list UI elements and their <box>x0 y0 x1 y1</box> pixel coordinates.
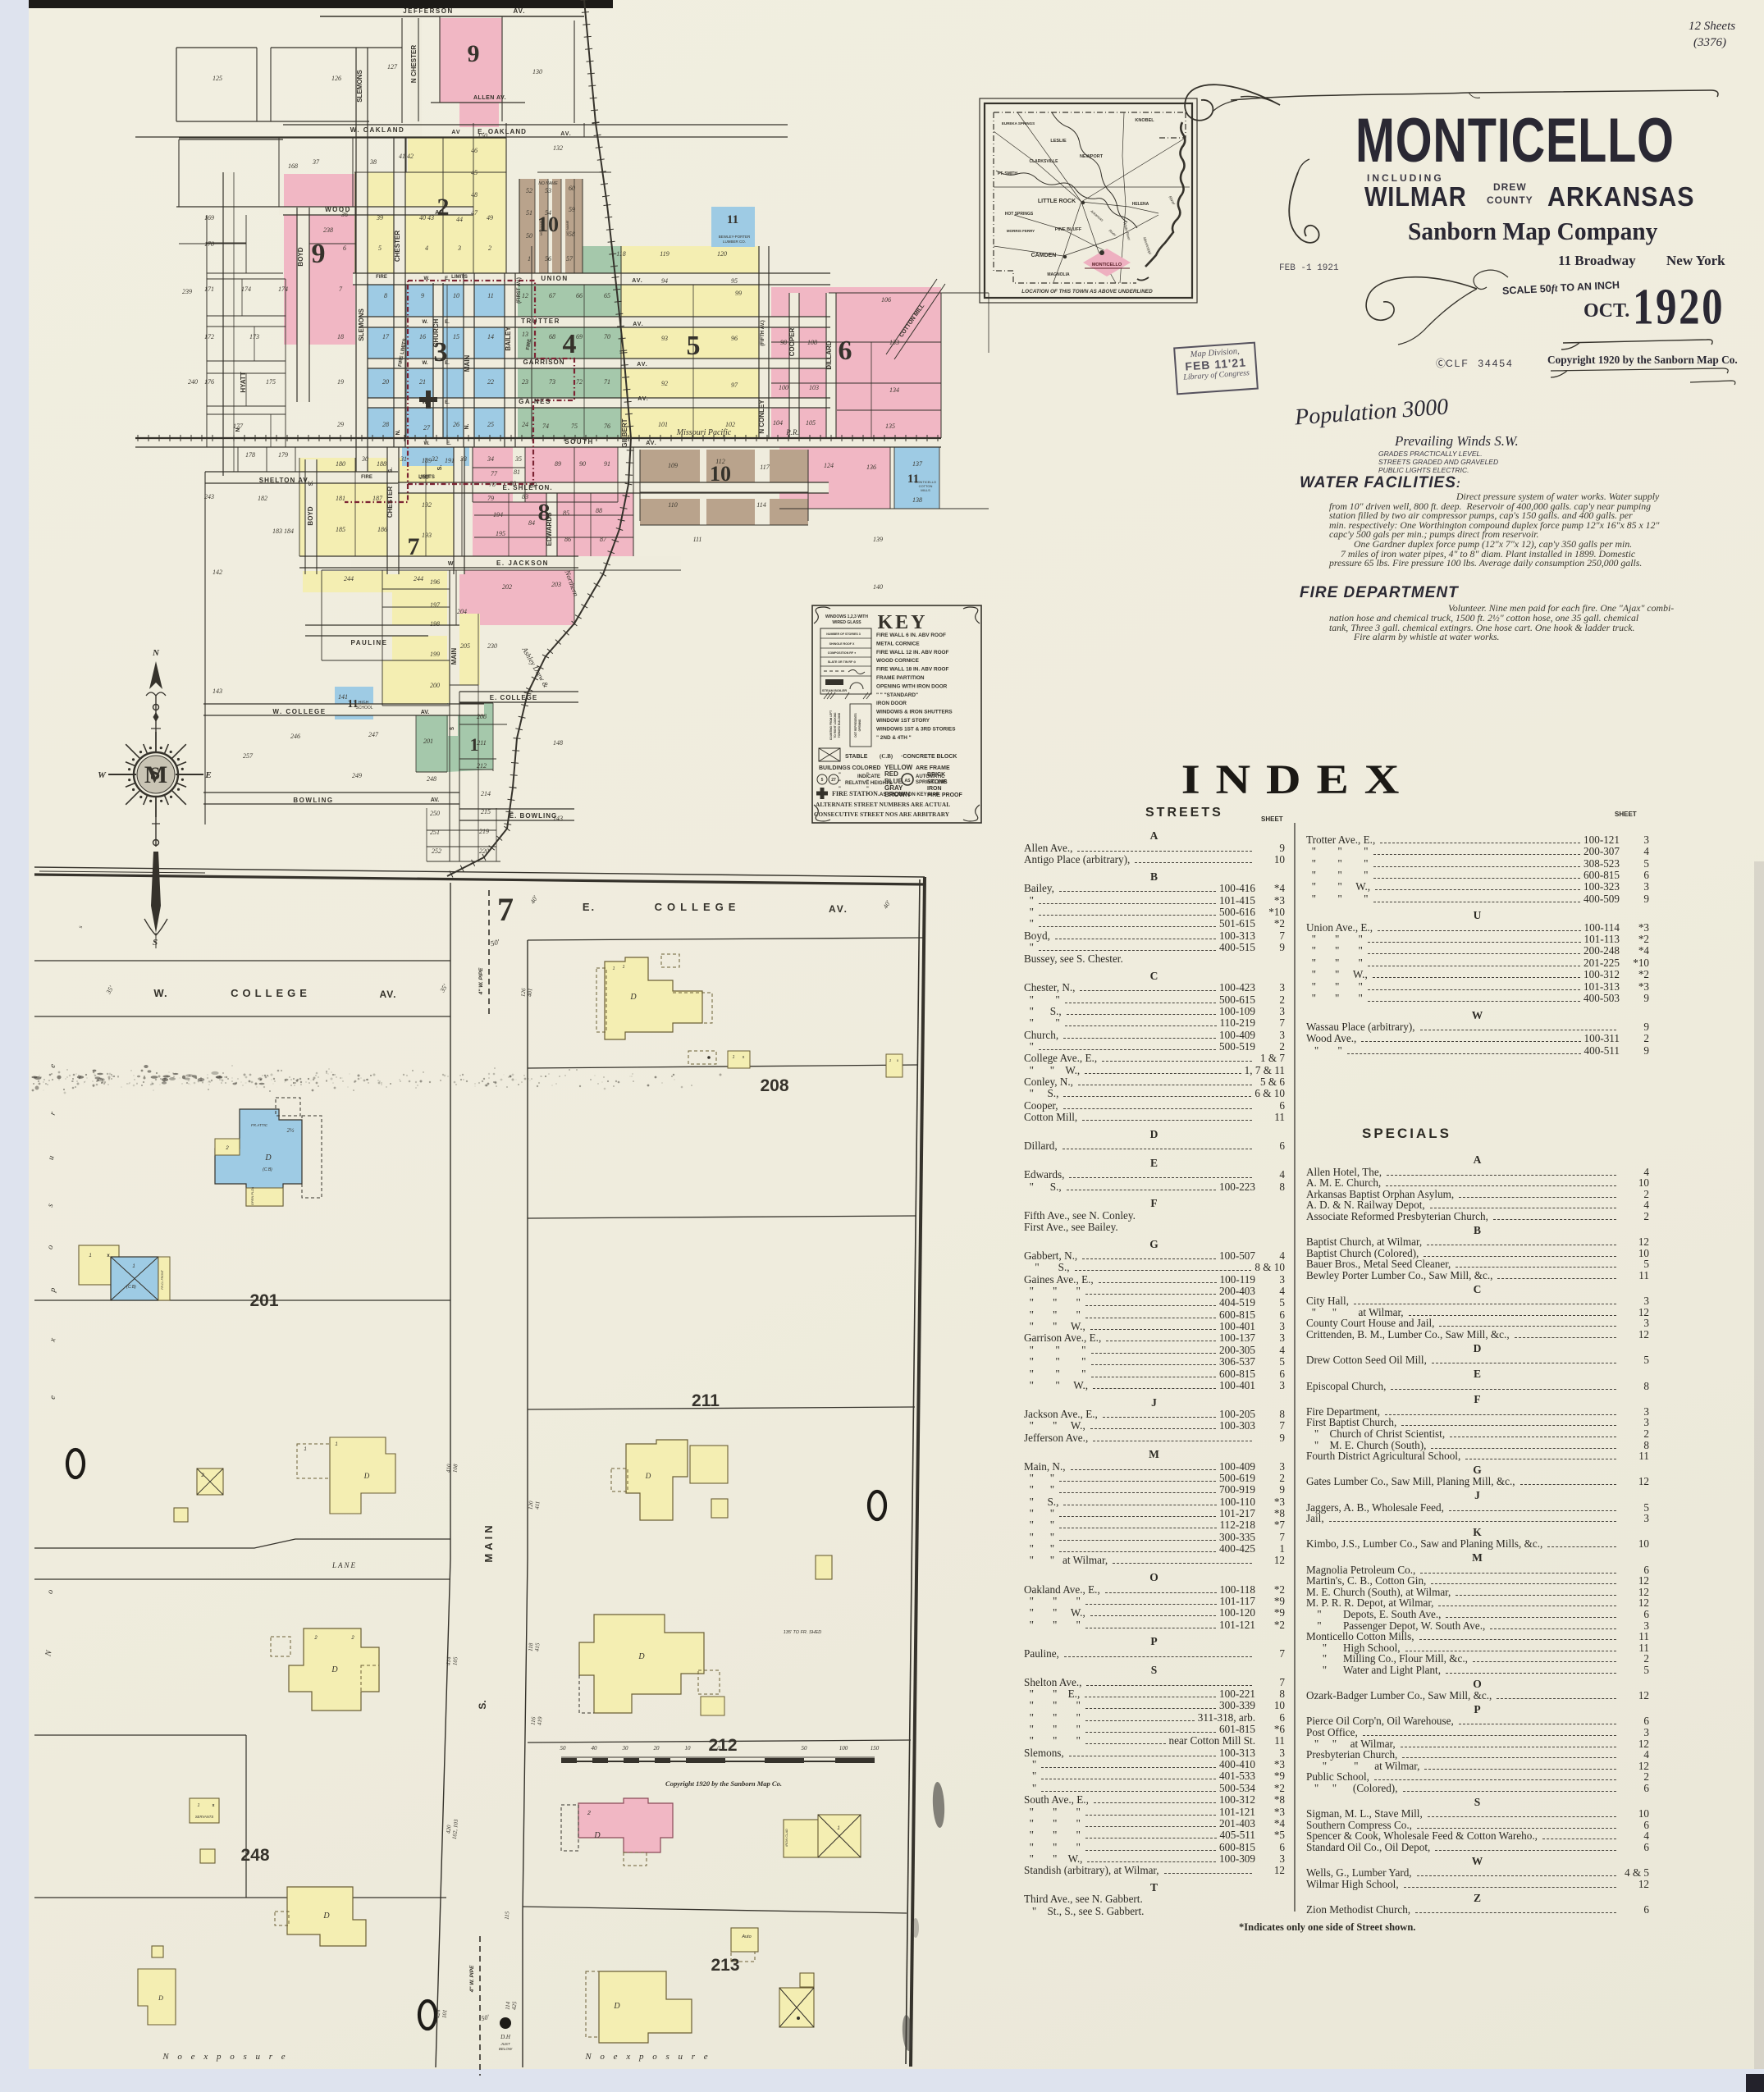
svg-text:212: 212 <box>708 1736 737 1755</box>
svg-text:150: 150 <box>478 132 487 139</box>
svg-text:174: 174 <box>241 285 251 293</box>
svg-text:44: 44 <box>456 216 463 223</box>
svg-text:JUST: JUST <box>500 2042 511 2046</box>
svg-text:104: 104 <box>773 419 783 427</box>
svg-text:248: 248 <box>427 775 436 783</box>
svg-text:30: 30 <box>622 1745 629 1752</box>
svg-text:425: 425 <box>511 2001 519 2011</box>
svg-text:35: 35 <box>514 455 522 463</box>
svg-text:E. COLLEGE: E. COLLEGE <box>490 694 537 701</box>
svg-text:LANE: LANE <box>331 1561 357 1569</box>
svg-text:D: D <box>645 1472 651 1480</box>
svg-text:130: 130 <box>532 68 542 75</box>
svg-text:N.: N. <box>395 429 401 435</box>
svg-text:18: 18 <box>337 333 344 340</box>
svg-text:GARRISON: GARRISON <box>523 359 564 366</box>
svg-text:FR.CL FRONT: FR.CL FRONT <box>161 1269 164 1289</box>
svg-text:138: 138 <box>912 496 922 504</box>
svg-text:BOWLING: BOWLING <box>293 797 333 804</box>
svg-text:183 184: 183 184 <box>272 528 294 535</box>
svg-text:56: 56 <box>545 255 551 263</box>
svg-text:96: 96 <box>731 335 738 342</box>
svg-text:52: 52 <box>526 187 532 194</box>
svg-text:50: 50 <box>526 232 532 240</box>
svg-text:70: 70 <box>604 333 610 340</box>
svg-text:HOT SPRINGS: HOT SPRINGS <box>1005 212 1034 217</box>
svg-text:115: 115 <box>504 1911 511 1920</box>
svg-text:240: 240 <box>188 378 198 386</box>
svg-text:RELATIVE HEIGHTS: RELATIVE HEIGHTS <box>845 781 893 786</box>
svg-text:27: 27 <box>423 424 431 432</box>
svg-text:6: 6 <box>343 244 346 252</box>
svg-text:INDICATE: INDICATE <box>857 774 880 779</box>
svg-text:57: 57 <box>566 255 574 263</box>
svg-text:AV.: AV. <box>637 362 648 368</box>
svg-text:69: 69 <box>576 333 583 340</box>
svg-text:168: 168 <box>288 162 298 170</box>
svg-text:114: 114 <box>756 501 765 509</box>
svg-text:134: 134 <box>889 386 899 394</box>
svg-text:1: 1 <box>89 1254 91 1258</box>
svg-text:FR.ATTIC: FR.ATTIC <box>251 1123 268 1127</box>
svg-text:251: 251 <box>430 829 440 836</box>
svg-text:IRON: IRON <box>927 786 942 792</box>
svg-text:" " "STANDARD": " " "STANDARD" <box>876 692 918 698</box>
svg-text:191: 191 <box>445 457 455 464</box>
svg-text:D: D <box>638 1652 645 1661</box>
svg-text:201: 201 <box>249 1291 278 1310</box>
svg-text:MORRIS FERRY: MORRIS FERRY <box>1007 229 1035 233</box>
svg-text:WIRED GLASS: WIRED GLASS <box>832 620 861 625</box>
svg-text:27: 27 <box>831 778 836 783</box>
svg-text:r: r <box>48 1111 58 1117</box>
svg-text:182: 182 <box>258 495 267 502</box>
svg-text:3: 3 <box>434 337 448 368</box>
svg-text:92: 92 <box>661 380 668 387</box>
svg-text:34: 34 <box>487 455 494 463</box>
svg-text:8: 8 <box>384 292 387 299</box>
svg-text:NEWPORT: NEWPORT <box>1080 154 1104 159</box>
svg-text:192: 192 <box>422 501 432 509</box>
svg-text:21: 21 <box>419 378 426 386</box>
svg-text:252: 252 <box>432 847 441 855</box>
svg-text:137: 137 <box>912 460 923 468</box>
svg-text:211: 211 <box>477 739 486 747</box>
svg-text:SLEMONS: SLEMONS <box>358 308 365 341</box>
svg-text:143: 143 <box>213 687 222 695</box>
svg-text:0: 0 <box>717 1745 720 1752</box>
svg-text:179: 179 <box>278 451 288 459</box>
svg-text:1: 1 <box>733 1055 735 1060</box>
svg-text:102: 102 <box>725 421 735 428</box>
svg-text:BEWLEY-PORTER: BEWLEY-PORTER <box>719 235 751 239</box>
svg-text:86: 86 <box>564 536 571 543</box>
svg-text:20: 20 <box>654 1745 660 1752</box>
svg-text:4: 4 <box>563 329 577 359</box>
svg-text:TO RIGHT LOOKING: TO RIGHT LOOKING <box>834 712 837 738</box>
svg-text:202: 202 <box>502 583 512 591</box>
svg-text:SHELTON AV.: SHELTON AV. <box>259 477 310 484</box>
svg-text:1: 1 <box>528 255 531 263</box>
svg-text:4" W. PIPE: 4" W. PIPE <box>478 967 484 995</box>
svg-text:FRAME PARTITION: FRAME PARTITION <box>876 675 925 681</box>
svg-text:106: 106 <box>881 296 891 304</box>
svg-text:N: N <box>43 1648 54 1658</box>
svg-text:100: 100 <box>839 1745 848 1752</box>
svg-text:198: 198 <box>430 620 440 628</box>
svg-text:CHESTER: CHESTER <box>386 486 394 518</box>
svg-text:PAULINE: PAULINE <box>350 639 387 646</box>
svg-text:E.: E. <box>445 276 450 281</box>
svg-text:x: x <box>213 1803 215 1808</box>
svg-text:e: e <box>48 1062 58 1069</box>
svg-text:S.: S. <box>437 465 443 471</box>
svg-text:172: 172 <box>204 333 214 340</box>
svg-text:AV.: AV. <box>379 989 396 1000</box>
svg-text:111: 111 <box>693 536 702 543</box>
svg-text:77: 77 <box>491 470 498 477</box>
svg-text:244: 244 <box>414 575 423 582</box>
svg-text:108: 108 <box>807 339 817 346</box>
svg-text:FT. SMITH: FT. SMITH <box>998 171 1017 176</box>
svg-text:208: 208 <box>760 1076 788 1095</box>
svg-text:u: u <box>47 1155 57 1162</box>
svg-text:BOYD: BOYD <box>297 247 304 266</box>
svg-text:50: 50 <box>802 1745 808 1752</box>
svg-text:LOCATION OF THIS TOWN AS ABOVE: LOCATION OF THIS TOWN AS ABOVE UNDERLINE… <box>1021 289 1153 295</box>
svg-text:36: 36 <box>340 211 348 218</box>
svg-text:SCHOOL: SCHOOL <box>355 706 372 710</box>
svg-text:83: 83 <box>522 493 528 500</box>
svg-text:s: s <box>77 925 84 929</box>
svg-text:94: 94 <box>661 277 668 285</box>
svg-text:Missouri Pacific: Missouri Pacific <box>676 428 732 437</box>
svg-text:79: 79 <box>487 495 494 502</box>
svg-text:BOYD: BOYD <box>307 506 314 525</box>
svg-text:11: 11 <box>727 213 738 226</box>
svg-text:150: 150 <box>871 1745 880 1752</box>
svg-text:o: o <box>46 1245 56 1251</box>
svg-text:53: 53 <box>545 187 551 194</box>
svg-text:247: 247 <box>368 731 379 738</box>
svg-text:139: 139 <box>873 536 883 543</box>
svg-text:39: 39 <box>376 214 383 222</box>
svg-text:COOPER: COOPER <box>788 327 796 356</box>
svg-text:205: 205 <box>460 642 470 650</box>
svg-text:132: 132 <box>553 144 563 152</box>
svg-text:W.: W. <box>423 361 428 366</box>
svg-text:D: D <box>363 1472 370 1480</box>
svg-text:CHESTER: CHESTER <box>394 231 401 262</box>
svg-text:80: 80 <box>510 480 516 487</box>
svg-text:IRON CLAD: IRON CLAD <box>784 1829 788 1847</box>
svg-text:49: 49 <box>487 214 493 222</box>
svg-text:65: 65 <box>604 292 610 299</box>
svg-text:196: 196 <box>430 578 440 586</box>
svg-text:40': 40' <box>529 894 540 905</box>
svg-text:D: D <box>593 1831 601 1840</box>
svg-text:2: 2 <box>488 244 491 252</box>
svg-text:238: 238 <box>323 226 333 234</box>
svg-text:195: 195 <box>496 530 505 537</box>
svg-text:239: 239 <box>182 288 192 295</box>
svg-text:89: 89 <box>555 460 561 468</box>
svg-text:KEY: KEY <box>877 612 927 633</box>
svg-text:N o e x p o s u r e: N o e x p o s u r e <box>162 2052 288 2062</box>
svg-text:D: D <box>158 1994 163 2002</box>
svg-text:(C.B): (C.B) <box>263 1167 272 1172</box>
svg-text:S: S <box>150 763 160 783</box>
svg-text:UNION: UNION <box>541 275 568 282</box>
svg-text:59: 59 <box>569 206 575 213</box>
svg-text:(FIFTH AV.): (FIFTH AV.) <box>761 320 765 345</box>
svg-text:R.R.: R.R. <box>785 428 799 436</box>
svg-text:5: 5 <box>687 331 701 361</box>
svg-text:EUREKA SPRINGS: EUREKA SPRINGS <box>1002 121 1035 126</box>
svg-text:257: 257 <box>243 752 254 760</box>
svg-text:140: 140 <box>873 583 883 591</box>
svg-text:220: 220 <box>479 847 489 855</box>
svg-text:SLATE OR TIN RF ⊙: SLATE OR TIN RF ⊙ <box>828 660 857 664</box>
svg-text:(C.B): (C.B) <box>126 1285 136 1290</box>
svg-text:AS SHOWN ON KEY MAP: AS SHOWN ON KEY MAP <box>880 792 939 797</box>
svg-text:1: 1 <box>335 1442 337 1447</box>
svg-text:100: 100 <box>779 384 788 391</box>
svg-text:173: 173 <box>249 333 259 340</box>
svg-text:33: 33 <box>459 455 467 463</box>
svg-text:": " <box>839 780 841 785</box>
svg-text:213: 213 <box>711 1956 739 1975</box>
svg-text:17: 17 <box>382 333 390 340</box>
svg-text:127: 127 <box>387 63 398 71</box>
svg-text:142: 142 <box>213 569 222 576</box>
svg-text:N CONLEY: N CONLEY <box>758 400 765 434</box>
svg-text:METAL CORNICE: METAL CORNICE <box>876 641 920 646</box>
svg-text:BUILDINGS COLORED: BUILDINGS COLORED <box>819 765 880 771</box>
svg-text:108: 108 <box>452 1464 459 1473</box>
svg-text:WINDOW 1ST STORY: WINDOW 1ST STORY <box>876 718 930 724</box>
svg-text:87: 87 <box>600 536 607 543</box>
svg-text:201: 201 <box>423 738 433 745</box>
svg-text:119: 119 <box>660 250 669 258</box>
svg-text:D: D <box>629 993 637 1002</box>
svg-text:186: 186 <box>377 526 387 533</box>
svg-text:LIMITS: LIMITS <box>451 275 468 280</box>
svg-text:FIRE WALL 12 IN. ABV ROOF: FIRE WALL 12 IN. ABV ROOF <box>876 650 949 655</box>
svg-text:30: 30 <box>361 455 368 463</box>
svg-text:D: D <box>613 2002 620 2011</box>
svg-text:WOOD CORNICE: WOOD CORNICE <box>876 658 920 664</box>
svg-text:46: 46 <box>471 147 478 154</box>
svg-text:River: River <box>1108 229 1117 238</box>
svg-text:125: 125 <box>213 75 222 82</box>
svg-text:10: 10 <box>685 1745 692 1752</box>
svg-text:1: 1 <box>837 1826 839 1831</box>
svg-text:246: 246 <box>290 733 300 740</box>
svg-text:48: 48 <box>471 191 478 199</box>
svg-text:50': 50' <box>480 2013 490 2022</box>
svg-text:84: 84 <box>528 519 535 527</box>
svg-text:SERVANTS: SERVANTS <box>195 1815 213 1819</box>
svg-text:W.: W. <box>423 320 428 325</box>
svg-text:p: p <box>48 1287 57 1295</box>
svg-text:19: 19 <box>337 378 344 386</box>
svg-text:WINDOWS & IRON SHUTTERS: WINDOWS & IRON SHUTTERS <box>876 710 953 715</box>
svg-text:72: 72 <box>576 378 583 386</box>
svg-text:TOWARD BUILDING: TOWARD BUILDING <box>838 712 841 738</box>
svg-text:SLEMONS: SLEMONS <box>356 70 363 103</box>
svg-text:MONTICELLO: MONTICELLO <box>1092 263 1122 267</box>
svg-text:S.: S. <box>388 468 394 473</box>
svg-text:174: 174 <box>278 285 288 293</box>
svg-text:199: 199 <box>430 651 440 658</box>
svg-text:LESLIE: LESLIE <box>1050 139 1067 144</box>
svg-text:16: 16 <box>419 333 426 340</box>
svg-text:WINDOWS 1,2,3 WITH: WINDOWS 1,2,3 WITH <box>825 614 868 619</box>
svg-text:29: 29 <box>337 421 344 428</box>
svg-text:(FIRST AV.): (FIRST AV.) <box>517 277 522 304</box>
svg-text:54: 54 <box>545 209 551 217</box>
svg-text:248: 248 <box>240 1846 269 1865</box>
svg-text:211: 211 <box>692 1391 720 1410</box>
svg-text:LITTLE ROCK: LITTLE ROCK <box>1038 199 1076 204</box>
svg-text:135: 135 <box>885 423 895 430</box>
svg-text:AV.: AV. <box>633 322 644 327</box>
svg-text:·CONCRETE BLOCK: ·CONCRETE BLOCK <box>901 754 957 760</box>
svg-text:W.: W. <box>424 276 430 281</box>
svg-text:o: o <box>46 1589 56 1596</box>
svg-text:230: 230 <box>487 642 497 650</box>
svg-text:AS: AS <box>905 779 912 783</box>
svg-text:5: 5 <box>821 778 824 783</box>
svg-text:AV.: AV. <box>632 278 643 284</box>
svg-text:200: 200 <box>430 682 440 689</box>
svg-text:COMPOSITION RF ●: COMPOSITION RF ● <box>828 651 857 655</box>
svg-text:81: 81 <box>514 468 520 476</box>
svg-text:E.: E. <box>445 400 450 405</box>
svg-text:D: D <box>322 1912 330 1921</box>
svg-text:7: 7 <box>408 533 420 560</box>
svg-text:2: 2 <box>313 1636 318 1641</box>
svg-text:COUNTING FROM LEFT: COUNTING FROM LEFT <box>829 710 833 740</box>
svg-text:W. OAKLAND: W. OAKLAND <box>350 126 405 134</box>
svg-text:HELENA: HELENA <box>1132 202 1149 207</box>
svg-text:TRUTTER: TRUTTER <box>521 317 560 325</box>
svg-text:DILLARD: DILLARD <box>825 340 833 369</box>
svg-text:102, 103: 102, 103 <box>451 1819 459 1840</box>
svg-text:E. JACKSON: E. JACKSON <box>496 560 549 567</box>
svg-text:148: 148 <box>553 739 563 747</box>
svg-text:190: 190 <box>419 473 429 481</box>
svg-text:CLARKSVILLE: CLARKSVILLE <box>1030 159 1059 164</box>
svg-text:37: 37 <box>312 158 320 166</box>
svg-text:AV.: AV. <box>829 903 848 915</box>
svg-text:93: 93 <box>661 335 668 342</box>
svg-text:193: 193 <box>422 532 432 539</box>
svg-text:4: 4 <box>425 244 428 252</box>
svg-text:101: 101 <box>658 421 668 428</box>
svg-text:N: N <box>152 648 160 658</box>
svg-text:S: S <box>153 938 158 948</box>
svg-text:W.: W. <box>153 987 167 999</box>
svg-text:5: 5 <box>378 244 382 252</box>
svg-text:8: 8 <box>538 499 551 526</box>
svg-text:118: 118 <box>616 250 625 258</box>
svg-text:S.: S. <box>477 1700 488 1709</box>
svg-text:197: 197 <box>430 601 441 609</box>
svg-text:AV: AV <box>451 130 460 135</box>
svg-text:419: 419 <box>537 1716 544 1726</box>
svg-text:12: 12 <box>522 292 528 299</box>
svg-text:76: 76 <box>604 423 610 430</box>
svg-text:D: D <box>331 1665 338 1674</box>
svg-text:66: 66 <box>576 292 583 299</box>
svg-text:170: 170 <box>204 240 214 248</box>
svg-text:51: 51 <box>526 209 532 217</box>
svg-text:KNOBEL: KNOBEL <box>1135 118 1154 123</box>
svg-text:91: 91 <box>604 460 610 468</box>
svg-text:110: 110 <box>668 501 677 509</box>
svg-text:OPENING: OPENING <box>858 719 861 731</box>
svg-text:112: 112 <box>715 458 724 465</box>
svg-text:2: 2 <box>587 1811 591 1816</box>
svg-text:RED: RED <box>884 770 898 778</box>
svg-text:2: 2 <box>200 1473 204 1478</box>
svg-text:AV.: AV. <box>431 797 440 803</box>
svg-text:FIRE: FIRE <box>376 275 387 280</box>
svg-text:FIRE: FIRE <box>361 475 372 480</box>
svg-text:x: x <box>48 1336 57 1344</box>
svg-text:1: 1 <box>304 1447 306 1452</box>
svg-text:68: 68 <box>549 333 555 340</box>
svg-text:249: 249 <box>352 772 362 779</box>
svg-text:212: 212 <box>477 762 487 770</box>
svg-text:W.: W. <box>448 561 455 567</box>
svg-text:LUMBER CO.: LUMBER CO. <box>723 240 746 244</box>
svg-text:204: 204 <box>457 608 467 615</box>
svg-text:180: 180 <box>336 460 345 468</box>
svg-text:COLLEGE: COLLEGE <box>655 901 741 913</box>
svg-text:COLLEGE: COLLEGE <box>231 987 311 999</box>
svg-text:105: 105 <box>452 1656 459 1666</box>
svg-text:82: 82 <box>530 482 537 489</box>
svg-text:2: 2 <box>350 1636 354 1641</box>
svg-text:35': 35' <box>438 983 449 994</box>
svg-text:67: 67 <box>549 292 556 299</box>
svg-text:1: 1 <box>623 965 625 970</box>
svg-text:W.: W. <box>424 441 430 446</box>
svg-text:126: 126 <box>331 75 341 82</box>
svg-text:9: 9 <box>421 292 424 299</box>
svg-text:Mississippi: Mississippi <box>1142 236 1152 255</box>
svg-text:HYATT: HYATT <box>240 372 247 392</box>
svg-text:101: 101 <box>441 2009 449 2018</box>
svg-text:13: 13 <box>522 331 528 338</box>
svg-text:AV.: AV. <box>421 710 430 715</box>
svg-text:Ashley Drew &: Ashley Drew & <box>520 645 551 689</box>
svg-text:MAIN: MAIN <box>450 648 458 665</box>
svg-text:50: 50 <box>560 1745 567 1752</box>
svg-text:s: s <box>46 1203 56 1208</box>
svg-text:IRON DOOR: IRON DOOR <box>876 701 907 706</box>
svg-text:W.: W. <box>423 400 428 405</box>
svg-text:58: 58 <box>569 231 575 238</box>
svg-text:GAINES: GAINES <box>519 398 551 405</box>
svg-text:WINDOWS 1ST & 3RD STORIES: WINDOWS 1ST & 3RD STORIES <box>876 726 956 732</box>
svg-text:MAIN: MAIN <box>482 1522 495 1562</box>
svg-text:10: 10 <box>453 292 459 299</box>
svg-text:W. COLLEGE: W. COLLEGE <box>272 708 326 715</box>
